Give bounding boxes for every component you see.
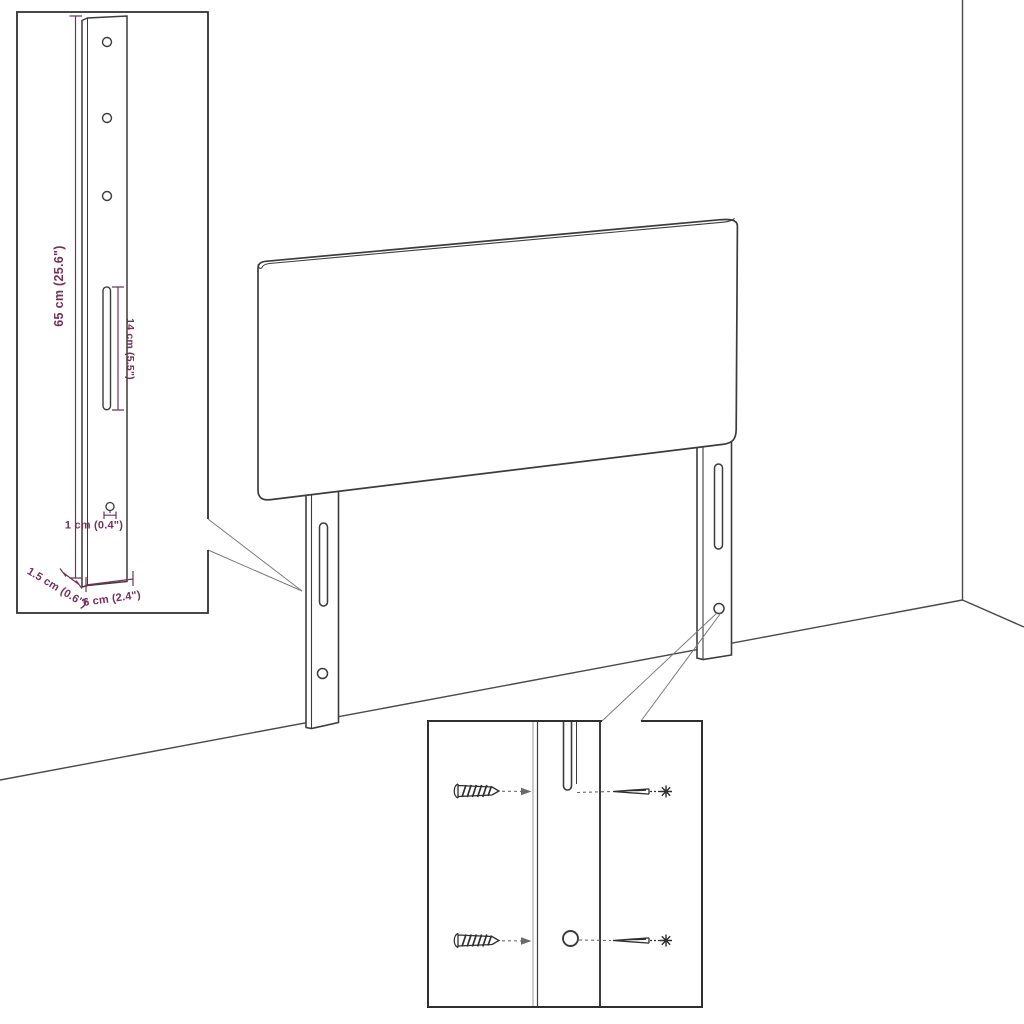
left-mounting-leg — [306, 476, 339, 729]
right-leg-hole — [714, 604, 724, 614]
floor-edge-right-line — [963, 600, 1024, 627]
screw-detail-inset — [428, 721, 702, 1007]
left-leg-hole — [318, 669, 328, 679]
headboard-outline — [258, 219, 737, 499]
right-leg-slot — [715, 464, 723, 549]
callout-leader-line — [602, 613, 718, 722]
diagram-page: 65 cm (25.6") 14 cm (5.5") 1 cm (0.4") 1… — [0, 0, 1024, 1024]
headboard-panel — [258, 218, 737, 500]
dim-slot-label: 14 cm (5.5") — [124, 318, 136, 380]
callout-leader-line — [208, 550, 302, 591]
left-leg-slot — [320, 523, 328, 606]
bracket-detail-inset: 65 cm (25.6") 14 cm (5.5") 1 cm (0.4") 1… — [17, 12, 208, 613]
callout-leader-line — [641, 614, 721, 722]
dim-hole-label: 1 cm (0.4") — [65, 520, 123, 532]
dim-height-label: 65 cm (25.6") — [52, 245, 66, 326]
bracket-callout-leaders — [208, 519, 302, 591]
screw-inset-frame — [428, 721, 702, 1007]
callout-leader-line — [208, 519, 302, 591]
diagram-canvas: 65 cm (25.6") 14 cm (5.5") 1 cm (0.4") 1… — [0, 0, 1024, 1024]
right-mounting-leg — [697, 428, 732, 660]
